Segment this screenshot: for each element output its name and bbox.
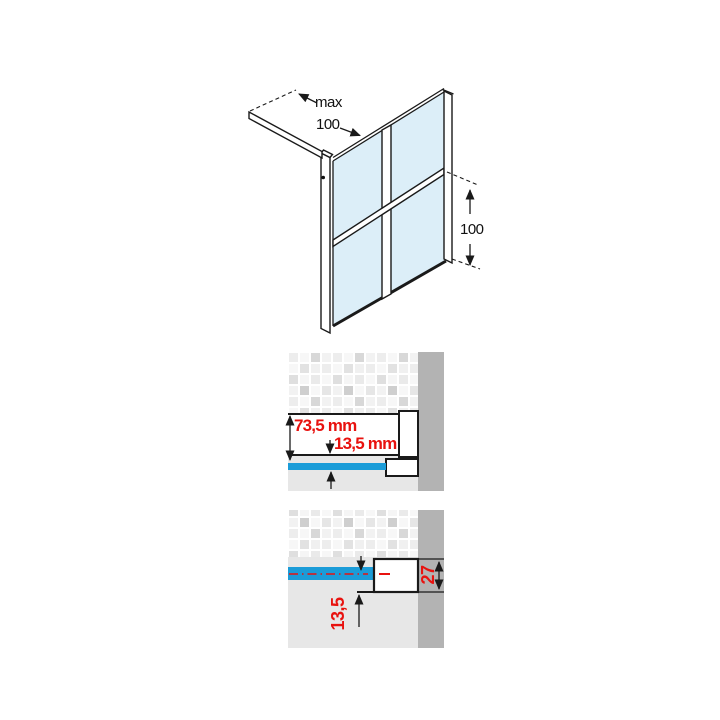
screw-hole [321, 176, 325, 180]
wall-bar [418, 352, 444, 491]
installation-diagram: max 100 100 73,5 mm 13,5 mm [0, 0, 720, 720]
square-profile [374, 559, 418, 592]
wall-bracket [399, 411, 418, 457]
max-value-label: 100 [316, 116, 340, 133]
height-dim-ext-bottom [452, 259, 480, 269]
dim-label-27: 27 [418, 565, 438, 585]
wall-post-profile [321, 153, 330, 333]
mosaic-tiles [288, 510, 418, 557]
wall-section-top-view: 73,5 mm 13,5 mm [288, 352, 444, 491]
bracket-foot [386, 459, 418, 476]
mosaic-tiles [288, 352, 418, 413]
isometric-panel-view: max 100 100 [249, 89, 484, 334]
wall-section-bottom-view: 13,5 27 [288, 510, 444, 648]
right-frame-profile [444, 91, 452, 263]
arm-extension-dashed-line [250, 90, 296, 111]
dim-label-73-5: 73,5 mm [294, 416, 357, 435]
dim-label-13-5: 13,5 mm [334, 434, 397, 453]
dim-label-13-5: 13,5 [328, 597, 348, 631]
support-arm [249, 112, 322, 158]
glass-strip [288, 463, 386, 470]
width-leader-arrow [340, 128, 360, 136]
height-dim-label: 100 [460, 221, 484, 238]
max-label: max [315, 94, 343, 111]
installation-diagram-page: max 100 100 73,5 mm 13,5 mm [0, 0, 720, 720]
